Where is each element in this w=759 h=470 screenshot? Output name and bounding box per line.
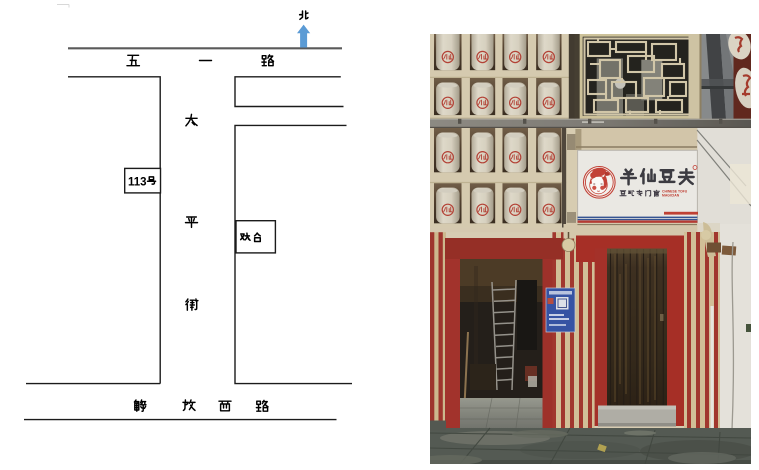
svg-text:113: 113	[128, 177, 147, 189]
